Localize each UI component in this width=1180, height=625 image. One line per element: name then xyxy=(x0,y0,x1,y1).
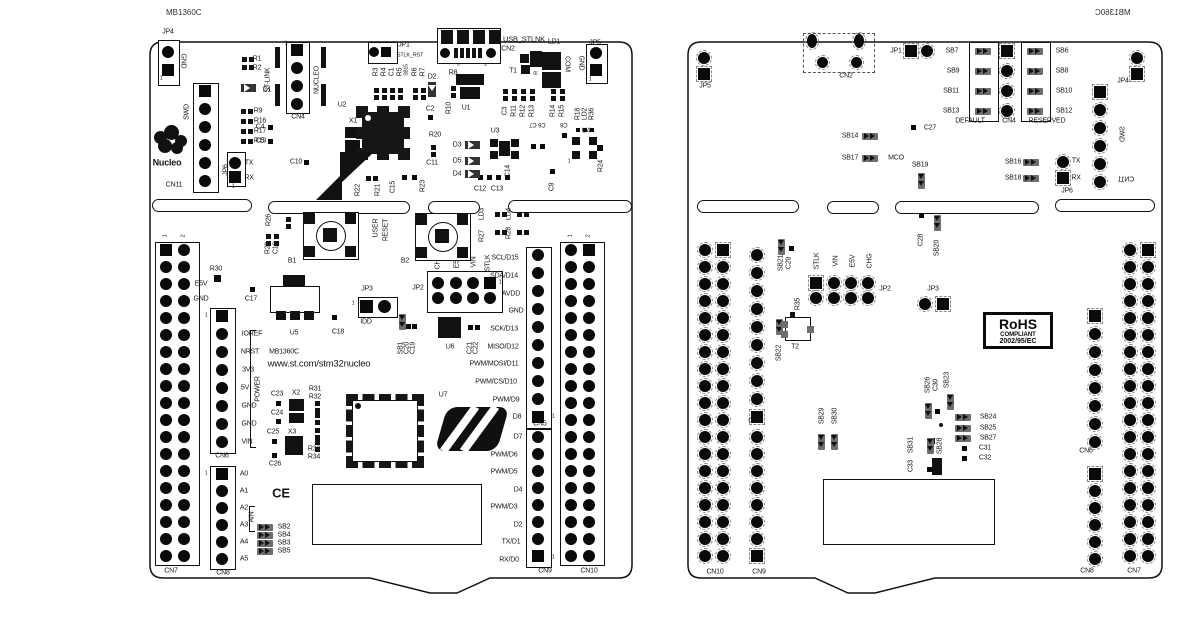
pin-pad-CN6 xyxy=(1089,436,1101,448)
silk-label: U7 xyxy=(439,392,448,399)
smd-pad-pair xyxy=(382,88,387,93)
usb-shield-pad xyxy=(489,30,501,44)
silk-label: E5V xyxy=(850,255,857,268)
sb-triangle xyxy=(1025,175,1030,181)
silk-label: CN8 xyxy=(216,570,229,577)
pin-pad-CN10 xyxy=(699,431,711,443)
pin-pad-CN5 xyxy=(751,249,763,261)
pin-pad-CN10 xyxy=(565,380,577,392)
silk-label: D7 xyxy=(514,434,523,441)
silk-label: CN5 xyxy=(748,418,761,425)
silk-label: C4 xyxy=(256,124,265,131)
pin-pad-CN11 xyxy=(1094,158,1106,170)
silk-label: R20 xyxy=(429,132,441,139)
pin-pad xyxy=(810,277,822,289)
pin-pad xyxy=(432,292,444,304)
pin-pad-CN4 xyxy=(291,80,303,92)
solder-bridge-icon xyxy=(918,173,925,189)
solder-bridge-icon xyxy=(955,435,971,442)
silk-label: RESET xyxy=(383,219,390,241)
solder-bridge-icon xyxy=(955,414,971,421)
smd-pad-pair xyxy=(560,89,565,94)
smd-pad-pair xyxy=(398,88,403,93)
pin-pad-CN5 xyxy=(532,357,544,369)
pin-pad-CN7 xyxy=(1124,550,1136,562)
pin-pad-CN7 xyxy=(178,397,190,409)
silk-label: SB30 xyxy=(832,408,839,424)
pin-pad xyxy=(467,277,479,289)
sb-triangle xyxy=(1035,88,1040,94)
silk-label: SB6 xyxy=(1056,48,1069,55)
pin-pad-CN6 xyxy=(216,400,228,412)
pin-pad-CN10 xyxy=(717,346,729,358)
smd-pad xyxy=(540,144,545,149)
pin-pad-CN7 xyxy=(160,295,172,307)
pin-pad-CN6 xyxy=(216,346,228,358)
component-body xyxy=(438,317,461,338)
silk-label: SDA/D14 xyxy=(490,273,518,280)
silk-label: C14 xyxy=(505,165,512,177)
pin-pad-CN8 xyxy=(216,519,228,531)
silk-label: C25 xyxy=(267,429,279,436)
sb-triangle xyxy=(977,88,982,94)
pin-pad xyxy=(862,277,874,289)
smd-pad xyxy=(468,325,473,330)
pin-pad-CN7 xyxy=(1124,261,1136,273)
button-plunger xyxy=(323,228,337,242)
pin-pad-CN10 xyxy=(717,329,729,341)
smd-pad xyxy=(962,446,967,451)
pin-pad-CN7 xyxy=(1124,363,1136,375)
silk-label: U2 xyxy=(338,102,347,109)
pin-pad-CN10 xyxy=(565,346,577,358)
pin-pad-CN5 xyxy=(751,375,763,387)
silk-label: 1 xyxy=(285,41,288,47)
smd-pad xyxy=(268,125,273,130)
silk-label: STLK xyxy=(485,255,492,272)
sb-triangle xyxy=(399,315,405,320)
sb-triangle xyxy=(983,108,988,114)
pin-pad-CN11 xyxy=(199,121,211,133)
pin-pad-CN5 xyxy=(751,339,763,351)
pin-pad-CN10 xyxy=(583,244,595,256)
silk-label: E5V xyxy=(195,281,208,288)
silk-label: D4 xyxy=(514,487,523,494)
silk-label: SB25 xyxy=(980,425,996,432)
silk-label: CN9 xyxy=(752,569,765,576)
pin-pad-CN8 xyxy=(1089,502,1101,514)
pin-pad-CN10 xyxy=(699,550,711,562)
sb-triangle xyxy=(963,414,968,420)
pin-pad-CN10 xyxy=(583,533,595,545)
silk-label: 1 xyxy=(232,184,235,190)
pin-pad-CN11 xyxy=(199,139,211,151)
silk-label: PWM/D3 xyxy=(491,504,518,511)
silk-label: R10 xyxy=(446,102,453,114)
component-body xyxy=(521,65,530,74)
component-body xyxy=(572,137,580,145)
component-body xyxy=(542,72,561,88)
pin-pad-CN5 xyxy=(532,303,544,315)
sb-triangle xyxy=(1029,88,1034,94)
pin-pad xyxy=(828,277,840,289)
silk-label: U5 xyxy=(290,330,299,337)
silk-label: PWM/D9 xyxy=(493,397,520,404)
silk-label: C29 xyxy=(786,257,793,269)
silk-label: X2 xyxy=(292,390,300,397)
silk-label: NUCLEO xyxy=(314,66,321,94)
silk-label: SB13 xyxy=(943,108,959,115)
pin-pad-CN5 xyxy=(532,321,544,333)
silk-label: C23 xyxy=(271,391,283,398)
silk-label: TX xyxy=(1072,158,1081,165)
silk-label: R11 xyxy=(511,105,518,117)
pin-pad xyxy=(590,47,602,59)
silk-label: PWM/D6 xyxy=(491,452,518,459)
silk-label: C24 xyxy=(271,410,283,417)
silk-label: CN7 xyxy=(1127,568,1140,575)
smd-pad-pair xyxy=(241,119,246,124)
pin-pad-CN7 xyxy=(1142,397,1154,409)
smd-pad xyxy=(406,324,411,329)
pin-pad-CN7 xyxy=(1142,414,1154,426)
silk-label: SB9 xyxy=(947,68,960,75)
pin-pad-CN10 xyxy=(699,278,711,290)
silk-label: SB7 xyxy=(946,48,959,55)
silk-label: R2 xyxy=(253,65,262,72)
sb-triangle xyxy=(918,181,924,186)
pin-pad-CN10 xyxy=(583,278,595,290)
pin-pad xyxy=(378,300,391,313)
silk-label: SB10 xyxy=(1056,88,1072,95)
pin-pad-CN10 xyxy=(565,448,577,460)
silk-label: 1 xyxy=(160,76,163,82)
pin-pad-CN10 xyxy=(717,261,729,273)
pin-pad-CN7 xyxy=(160,499,172,511)
pin-pad-CN10 xyxy=(699,244,711,256)
silk-label: C8 xyxy=(560,121,567,127)
component-body xyxy=(460,87,480,99)
breakaway-slot xyxy=(1055,199,1155,212)
pin-pad-CN10 xyxy=(717,516,729,528)
silk-label: www.st.com/stm32nucleo xyxy=(268,359,371,369)
pin-pad-CN7 xyxy=(1124,516,1136,528)
pin-pad-CN10 xyxy=(717,278,729,290)
pin-pad-CN5 xyxy=(751,321,763,333)
silk-label: PWM/MOSI/D11 xyxy=(470,361,519,368)
silk-label: C10 xyxy=(290,159,302,166)
solder-bridge-icon xyxy=(975,68,991,75)
silk-label: R4 xyxy=(381,68,388,77)
silk-label: PWM/CS/D10 xyxy=(475,379,517,386)
silk-label: JP1 xyxy=(890,48,901,55)
silk-label: R7 xyxy=(420,68,427,77)
pin-pad xyxy=(698,68,710,80)
diode-triangle xyxy=(468,170,474,178)
smd-pad-pair xyxy=(517,230,522,235)
smd-pad-pair xyxy=(266,234,271,239)
board-title-right-mirrored: MB1360C xyxy=(1095,8,1131,17)
pin-pad-CN7 xyxy=(1142,329,1154,341)
solder-bridge-icon xyxy=(955,425,971,432)
smd-pad-pair xyxy=(315,440,320,445)
silk-label: MISO/D12 xyxy=(487,344,518,351)
silk-label: SB27 xyxy=(980,435,996,442)
sb-triangle xyxy=(870,155,875,161)
smd-pad xyxy=(268,139,273,144)
pin-pad-CN10 xyxy=(565,312,577,324)
silk-label: R9 xyxy=(254,108,263,115)
pin-pad-CN7 xyxy=(178,278,190,290)
sb-triangle xyxy=(977,108,982,114)
silk-label: USB_STLNK xyxy=(503,35,545,43)
silk-label: CN4 xyxy=(291,114,304,121)
esd-triangle xyxy=(316,174,342,200)
diode-icon xyxy=(465,170,480,178)
smd-pad xyxy=(475,325,480,330)
sb-triangle xyxy=(963,425,968,431)
component-body xyxy=(321,84,326,106)
silk-label: JP5 xyxy=(699,83,710,90)
silk-label: R xyxy=(534,71,540,75)
smd-pad xyxy=(550,169,555,174)
button-pad xyxy=(304,246,315,257)
silk-label: D5 xyxy=(453,158,462,165)
pin-pad-CN8 xyxy=(1089,485,1101,497)
pin-pad-CN10 xyxy=(565,482,577,494)
pin-pad-CN10 xyxy=(699,465,711,477)
pin-pad-CN10 xyxy=(699,533,711,545)
silk-label: 3V3 xyxy=(242,367,254,374)
pin-pad-CN9 xyxy=(751,482,763,494)
usb-signal-pin xyxy=(454,48,458,58)
silk-label: MCO xyxy=(888,155,904,162)
silk-label: SWD xyxy=(184,104,191,120)
component-body xyxy=(572,151,580,159)
pin-pad-CN5 xyxy=(532,375,544,387)
pin-pad-CN9 xyxy=(751,533,763,545)
pin-pad-CN8 xyxy=(1089,536,1101,548)
pin-pad-CN7 xyxy=(160,465,172,477)
regulator-leg xyxy=(304,311,314,320)
silk-label: CN7 xyxy=(164,568,177,575)
pin-pad-CN7 xyxy=(160,414,172,426)
solder-bridge-icon xyxy=(257,548,273,555)
component-body xyxy=(285,436,303,455)
silk-label: C31 xyxy=(979,445,991,452)
pin-pad-CN6 xyxy=(216,328,228,340)
silk-label: JP3 xyxy=(361,286,372,293)
pin-pad xyxy=(1131,52,1143,64)
pin-pad-CN7 xyxy=(1124,414,1136,426)
smd-pad xyxy=(402,175,407,180)
pin-pad-CN10 xyxy=(717,499,729,511)
smd-pad xyxy=(276,419,281,424)
pin1-dot xyxy=(355,403,361,409)
silk-label: 1 xyxy=(589,77,592,83)
silk-label: D8 xyxy=(513,414,522,421)
pin-pad-CN10 xyxy=(699,482,711,494)
silk-label: MB1360C xyxy=(269,349,299,356)
pin-pad-CN6 xyxy=(1089,310,1101,322)
pin-pad-CN7 xyxy=(178,550,190,562)
pin-pad-CN10 xyxy=(565,431,577,443)
pin-pad-CN10 xyxy=(565,363,577,375)
silk-label: SCK/D13 xyxy=(490,326,518,333)
pin-pad-CN11 xyxy=(199,157,211,169)
pin-pad-CN7 xyxy=(1142,499,1154,511)
pin-pad-CN10 xyxy=(565,414,577,426)
silk-label: R34 xyxy=(308,454,320,461)
smd-pad xyxy=(927,467,932,472)
pin-pad-CN10 xyxy=(583,482,595,494)
smd-pad xyxy=(919,213,924,218)
sb-triangle xyxy=(977,68,982,74)
component-body xyxy=(456,74,484,85)
pin-pad-CN6 xyxy=(1089,382,1101,394)
pin-pad-CN9 xyxy=(532,465,544,477)
sb-triangle xyxy=(265,532,270,538)
silk-label: CE xyxy=(272,487,290,500)
pin-pad-CN11 xyxy=(199,103,211,115)
transistor-pad xyxy=(781,321,788,328)
pin-pad xyxy=(1057,156,1069,168)
silk-label: 1 xyxy=(552,555,555,561)
pin-pad-CN5 xyxy=(532,285,544,297)
silk-label: 1 xyxy=(568,159,571,165)
pin-pad-CN7 xyxy=(1124,397,1136,409)
silk-label: A3 xyxy=(240,522,248,529)
pin-pad-CN5 xyxy=(751,357,763,369)
silk-label: C26 xyxy=(269,461,281,468)
smd-pad xyxy=(272,453,277,458)
smd-pad xyxy=(276,401,281,406)
silk-label: 1 xyxy=(499,280,502,286)
pin-pad xyxy=(810,292,822,304)
pin-pad-CN7 xyxy=(1142,346,1154,358)
pin-pad xyxy=(229,171,241,183)
silk-label: R27 xyxy=(479,230,486,242)
usb-mount-pad xyxy=(486,48,496,58)
pin-pad-CN7 xyxy=(160,346,172,358)
silk-label: SB8 xyxy=(1056,68,1069,75)
silk-label: DEFAULT xyxy=(955,118,985,125)
pin-pad-CN10 xyxy=(717,482,729,494)
pin-pad-CN10 xyxy=(717,295,729,307)
button-pad xyxy=(304,213,315,224)
rohs-mark: RoHSCOMPLIANT2002/95/EC xyxy=(983,312,1053,349)
solder-bridge-icon xyxy=(831,434,838,450)
silk-label: 1 xyxy=(205,313,208,319)
silk-label: VIN xyxy=(833,255,840,266)
pin-pad-CN9 xyxy=(532,533,544,545)
sb-triangle xyxy=(947,395,953,400)
diode-icon xyxy=(465,157,480,165)
silk-label: C28 xyxy=(918,234,925,246)
pin-pad-CN9 xyxy=(532,431,544,443)
silk-label: R35 xyxy=(795,298,802,310)
pin-pad-CN10 xyxy=(565,533,577,545)
pin-pad-CN11 xyxy=(1094,140,1106,152)
solder-bridge-icon xyxy=(257,524,273,531)
silk-label: R33 xyxy=(308,446,320,453)
sb-triangle xyxy=(259,532,264,538)
board-title-left: MB1360C xyxy=(166,8,202,17)
sb-triangle xyxy=(1031,159,1036,165)
pin-pad-CN5 xyxy=(751,267,763,279)
silk-label: D2 xyxy=(428,74,437,81)
pin-pad-CN4 xyxy=(1001,105,1013,117)
silk-label: X3 xyxy=(288,429,296,436)
pin-pad-CN7 xyxy=(160,312,172,324)
transistor-pad xyxy=(807,326,814,333)
pin-pad-CN7 xyxy=(178,363,190,375)
silk-label: SB4 xyxy=(278,532,291,539)
silk-label: RX xyxy=(1071,175,1080,182)
silk-label: JP2 xyxy=(879,286,890,293)
silk-label: R30 xyxy=(210,266,222,273)
smd-pad xyxy=(412,175,417,180)
smd-pad xyxy=(412,324,417,329)
sb-triangle xyxy=(1025,159,1030,165)
diode-triangle xyxy=(468,157,474,165)
pin-pad-CN10 xyxy=(717,431,729,443)
pin-pad-CN10 xyxy=(583,295,595,307)
nucleo-logo-blob xyxy=(158,139,172,153)
pin-pad xyxy=(229,157,241,169)
pin-pad-CN7 xyxy=(178,414,190,426)
silk-label: SB26 xyxy=(925,377,932,393)
transistor-pad xyxy=(781,331,788,338)
component-body xyxy=(321,47,326,68)
pin-pad-CN7 xyxy=(178,431,190,443)
pin-pad-CN10 xyxy=(699,346,711,358)
pin-pad-CN9 xyxy=(532,448,544,460)
silk-label: B1 xyxy=(288,258,296,265)
pin-pad-CN10 xyxy=(699,414,711,426)
smd-pad-pair xyxy=(431,145,436,150)
silk-label: A0 xyxy=(240,471,248,478)
solder-bridge-icon xyxy=(1027,108,1043,115)
silk-label: SB24 xyxy=(980,414,996,421)
smd-pad xyxy=(214,275,221,282)
smd-pad xyxy=(562,133,567,138)
diode-icon xyxy=(241,84,256,92)
silk-label: SB11 xyxy=(943,88,959,95)
silk-label: SB15 xyxy=(405,64,410,75)
silk-label: C6 xyxy=(538,121,545,127)
sb-triangle xyxy=(870,133,875,139)
silk-label: CN2 xyxy=(501,46,514,53)
pin-pad-CN7 xyxy=(1142,363,1154,375)
sb-triangle xyxy=(831,442,837,447)
silk-label: AVDD xyxy=(502,291,520,298)
sb-triangle xyxy=(934,223,940,228)
solder-bridge-icon xyxy=(975,108,991,115)
pin-pad-CN10 xyxy=(583,499,595,511)
pin-pad-CN5 xyxy=(532,249,544,261)
pin-pad xyxy=(360,300,373,313)
sb-triangle xyxy=(265,524,270,530)
silk-label: C3 xyxy=(502,107,509,116)
pin-pad-CN9 xyxy=(751,516,763,528)
component-body xyxy=(589,137,597,145)
silk-label: SB21 xyxy=(778,255,785,271)
silk-label: 2 xyxy=(586,235,592,238)
sb-triangle xyxy=(259,540,264,546)
pin-pad-CN7 xyxy=(1142,482,1154,494)
silk-label: LD1 xyxy=(548,39,560,46)
